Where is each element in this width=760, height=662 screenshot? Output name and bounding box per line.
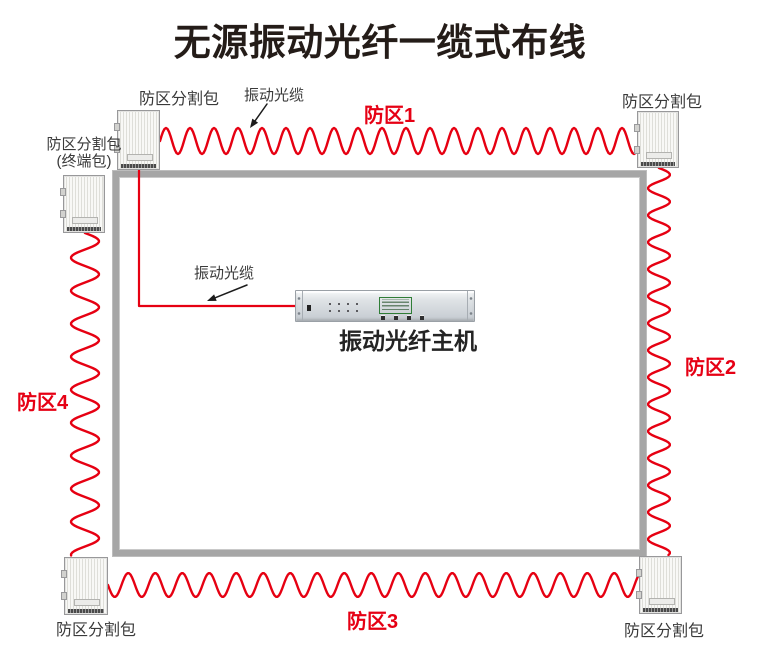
label-zone-4: 防区4 <box>17 386 68 415</box>
label-splitter-terminal: 防区分割包 (终端包) <box>36 136 132 170</box>
host-lcd-screen <box>379 297 412 314</box>
device-hinge <box>61 592 67 600</box>
rack-ear-left <box>296 291 303 321</box>
device-hinge <box>636 569 642 577</box>
label-zone-1: 防区1 <box>364 99 415 128</box>
device-terminal-strip <box>643 608 678 612</box>
host-led <box>338 303 340 305</box>
device-terminal-strip <box>68 609 104 613</box>
host-led <box>338 310 340 312</box>
host-button <box>394 316 398 320</box>
device-hinge <box>634 146 640 154</box>
cable-zone-3 <box>108 573 639 597</box>
zone-splitter-box-terminal <box>63 175 105 233</box>
device-hinge <box>61 570 67 578</box>
arrow-cable-top-head <box>250 119 258 128</box>
label-splitter-top-right: 防区分割包 <box>622 88 702 112</box>
host-button <box>407 316 411 320</box>
device-nameplate <box>646 152 672 159</box>
device-nameplate <box>72 217 98 224</box>
host-power-switch <box>307 305 311 311</box>
cable-zone-4 <box>71 233 99 556</box>
label-vibration-cable-mid: 振动光缆 <box>194 262 254 283</box>
label-splitter-top-left: 防区分割包 <box>139 85 219 109</box>
zone-splitter-box-bottom-right <box>639 556 682 614</box>
host-led <box>356 310 358 312</box>
label-splitter-terminal-line1: 防区分割包 <box>36 136 132 153</box>
device-terminal-strip <box>641 162 675 166</box>
rack-ear-right <box>467 291 474 321</box>
device-hinge <box>636 591 642 599</box>
host-led <box>347 303 349 305</box>
device-nameplate <box>649 598 675 605</box>
device-hinge <box>114 123 120 131</box>
label-host: 振动光纤主机 <box>328 322 488 356</box>
zone-splitter-box-top-right <box>637 111 679 168</box>
host-led <box>329 303 331 305</box>
host-led <box>329 310 331 312</box>
device-hinge <box>60 188 66 196</box>
perimeter-wall <box>113 171 646 556</box>
device-hinge <box>60 210 66 218</box>
host-button <box>381 316 385 320</box>
label-zone-2: 防区2 <box>685 351 736 380</box>
host-led <box>356 303 358 305</box>
label-vibration-cable-top: 振动光缆 <box>244 84 304 105</box>
device-terminal-strip <box>67 227 101 231</box>
zone-splitter-box-bottom-left <box>64 557 108 615</box>
label-splitter-bottom-right: 防区分割包 <box>624 617 704 641</box>
diagram-canvas: 无源振动光纤一缆式布线 防区分割包 防区分割包 防区分割包 防区分割包 防区分割… <box>0 0 760 662</box>
vibration-fiber-host-unit <box>295 290 475 322</box>
host-button <box>420 316 424 320</box>
cable-zone-2 <box>648 168 670 555</box>
cable-zone-1 <box>160 128 639 154</box>
host-led <box>347 310 349 312</box>
label-zone-3: 防区3 <box>347 605 398 634</box>
arrow-cable-top <box>255 104 267 121</box>
device-hinge <box>634 124 640 132</box>
label-splitter-terminal-line2: (终端包) <box>36 153 132 170</box>
page-title: 无源振动光纤一缆式布线 <box>0 12 760 66</box>
device-nameplate <box>74 599 100 606</box>
label-splitter-bottom-left: 防区分割包 <box>56 616 136 640</box>
